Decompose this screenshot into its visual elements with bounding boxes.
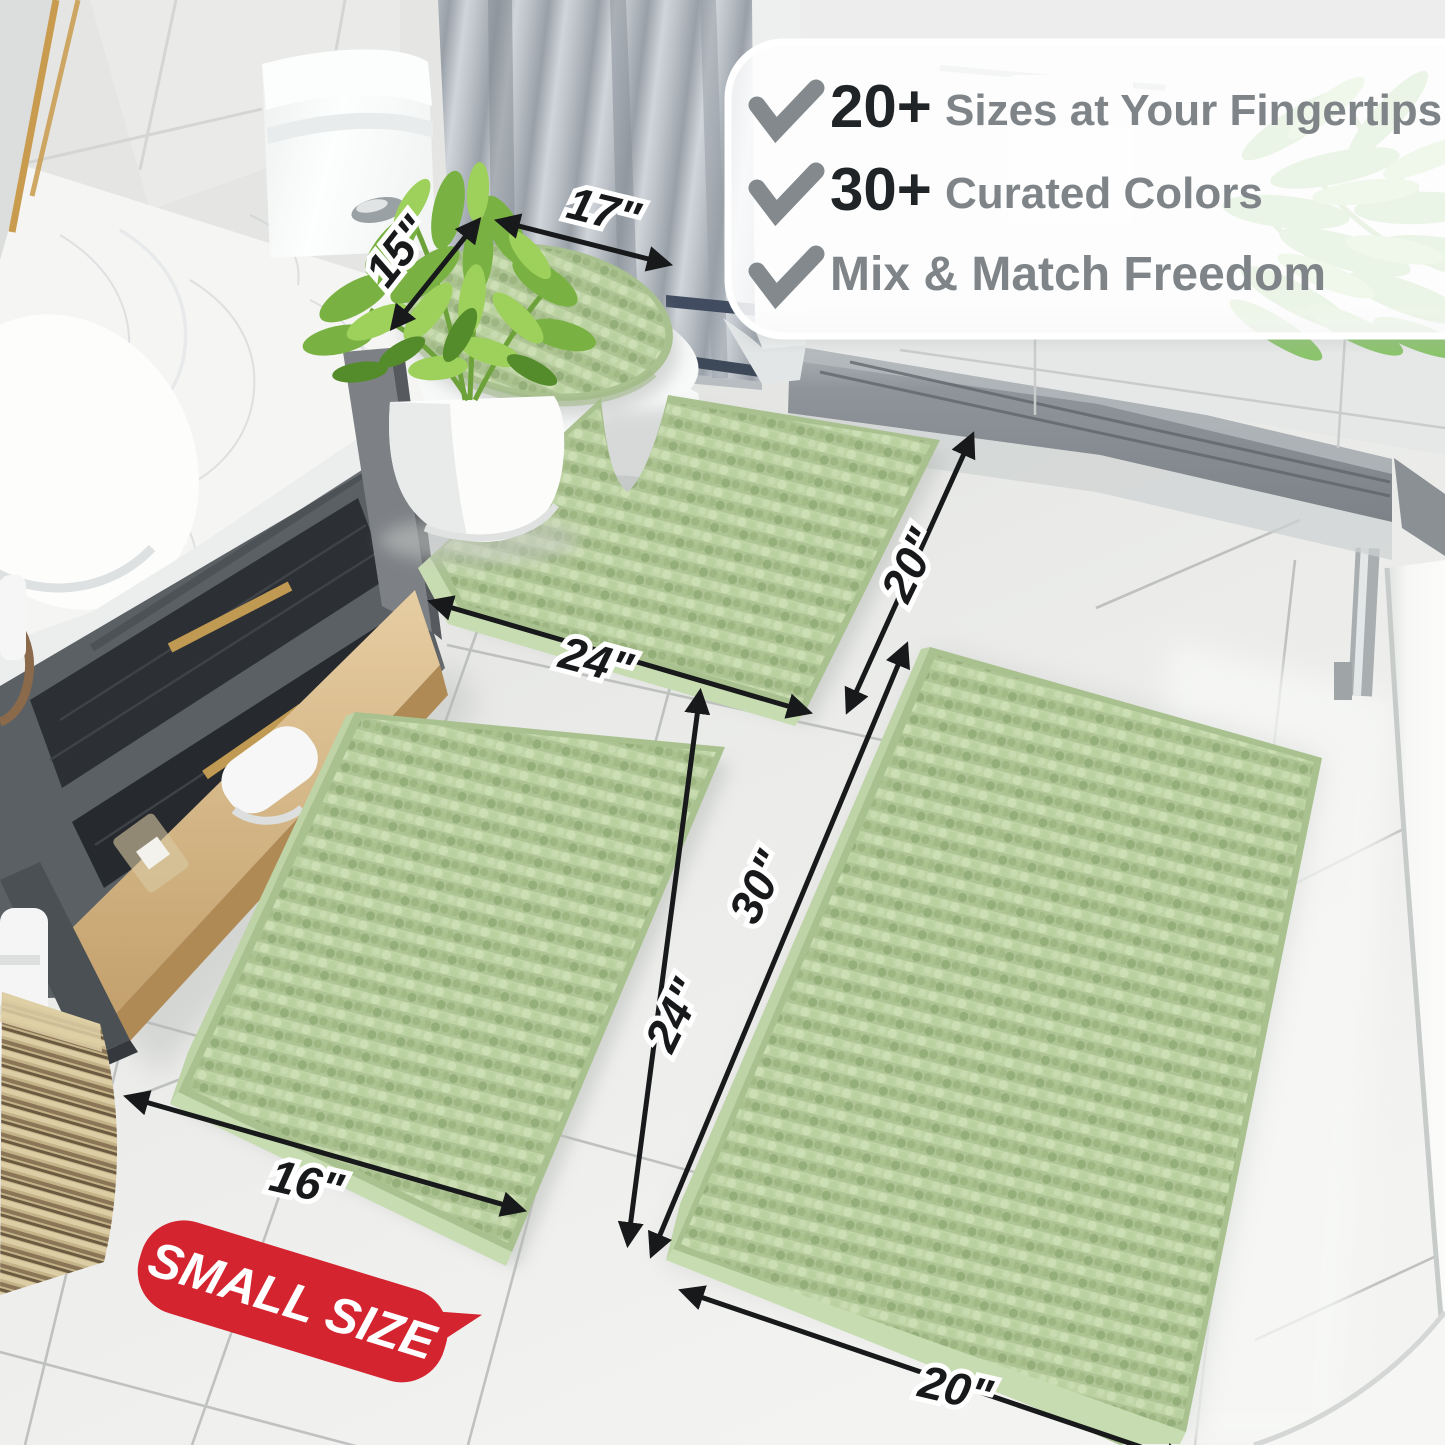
svg-text:Curated Colors: Curated Colors xyxy=(945,169,1263,218)
svg-text:Mix & Match Freedom: Mix & Match Freedom xyxy=(830,248,1326,301)
svg-text:30+: 30+ xyxy=(830,156,932,223)
svg-text:20+: 20+ xyxy=(830,73,932,140)
svg-text:Sizes at Your Fingertips: Sizes at Your Fingertips xyxy=(945,86,1442,135)
